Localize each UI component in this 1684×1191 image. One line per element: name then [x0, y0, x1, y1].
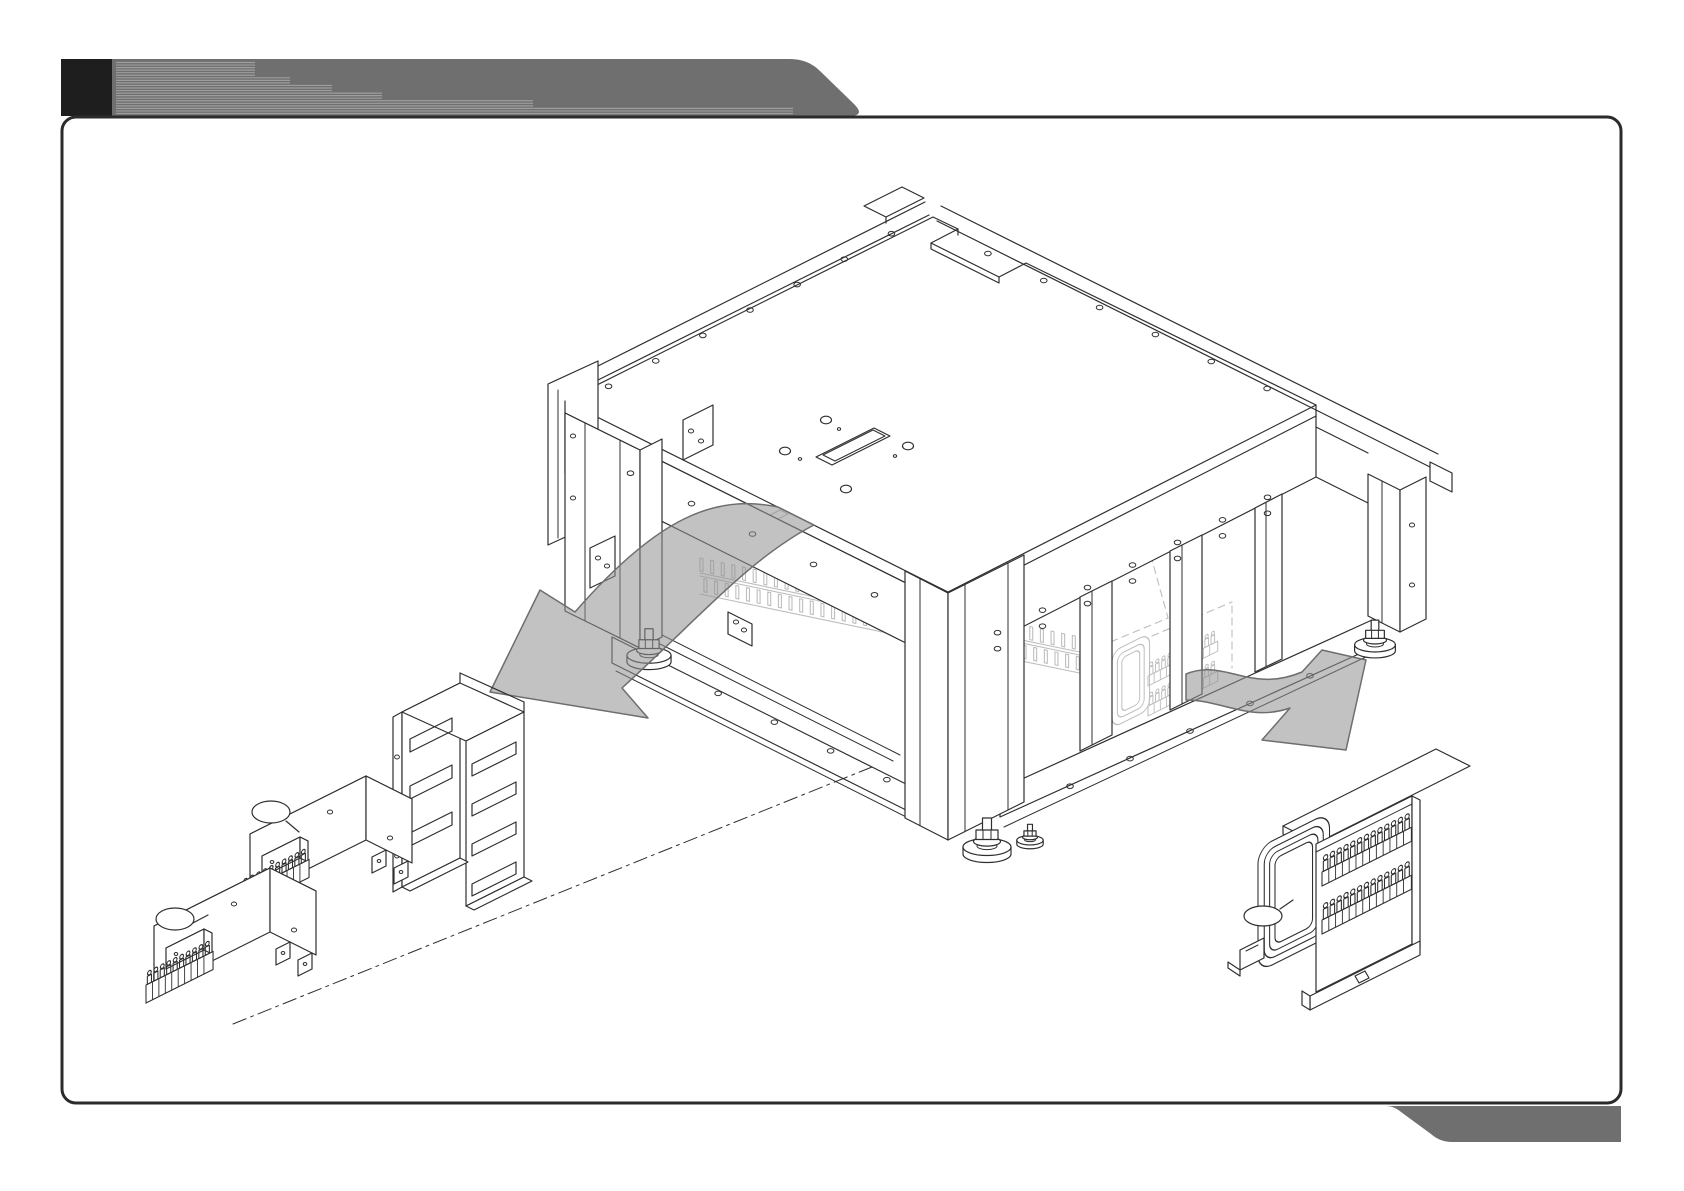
- banner-black-block: [61, 59, 112, 116]
- machine-top-flap: [864, 187, 924, 217]
- screw-hole: [1129, 579, 1136, 584]
- footer-bar: [1386, 1106, 1621, 1142]
- screw-hole: [985, 251, 992, 256]
- header-banner: [61, 59, 859, 116]
- leveling-foot: [1017, 824, 1043, 848]
- manual-page: [0, 0, 1684, 1191]
- screw-hole: [1219, 534, 1226, 539]
- right-corner-column: [1316, 427, 1426, 632]
- transformer: [1228, 749, 1470, 1010]
- screw-hole: [1039, 624, 1046, 629]
- center-front-column: [905, 555, 1024, 840]
- mounting-bracket: [393, 673, 532, 910]
- power-supply-unit-lower: [146, 868, 316, 1003]
